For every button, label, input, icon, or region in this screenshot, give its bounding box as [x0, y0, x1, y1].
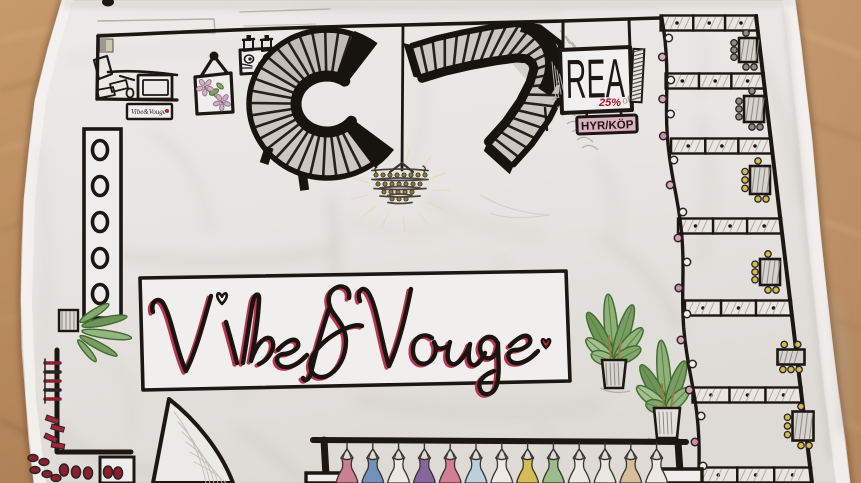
svg-text:Vibe&Vouge: Vibe&Vouge	[131, 108, 166, 116]
svg-text:HYR/KÖP: HYR/KÖP	[581, 118, 634, 133]
svg-text:25%: 25%	[598, 97, 621, 109]
